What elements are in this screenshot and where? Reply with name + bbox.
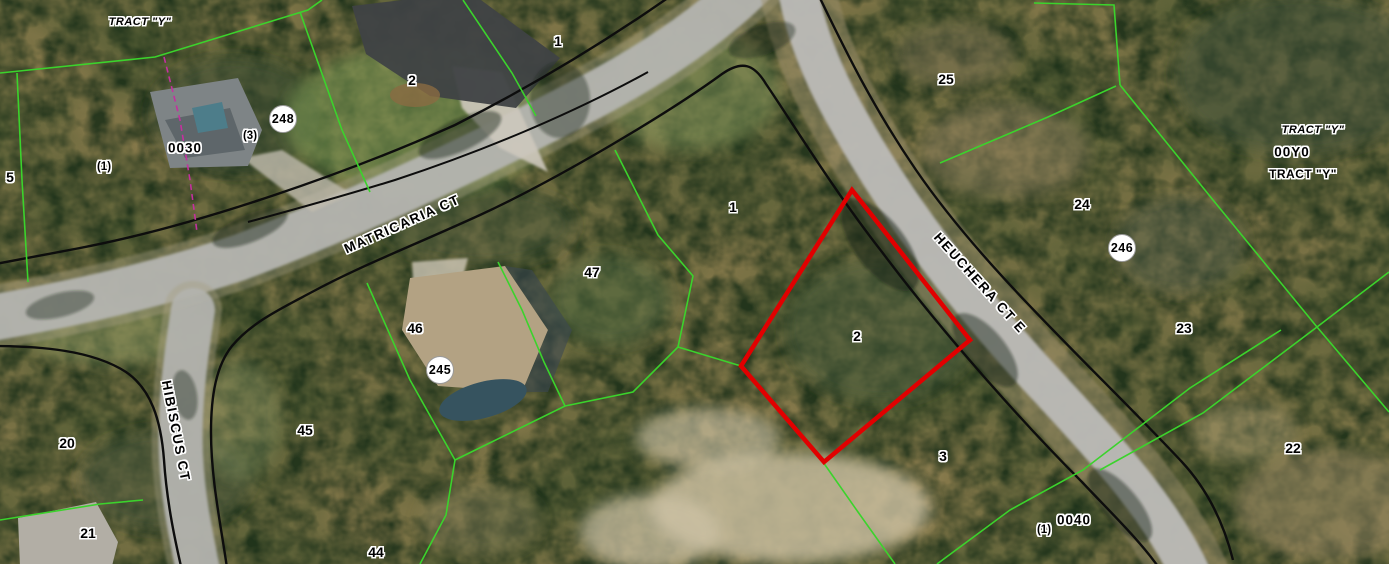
aerial-basemap (0, 0, 1389, 564)
parcel-map-view[interactable]: TRACT "Y"12255(1)0030(3)MATRICARIA CT471… (0, 0, 1389, 564)
